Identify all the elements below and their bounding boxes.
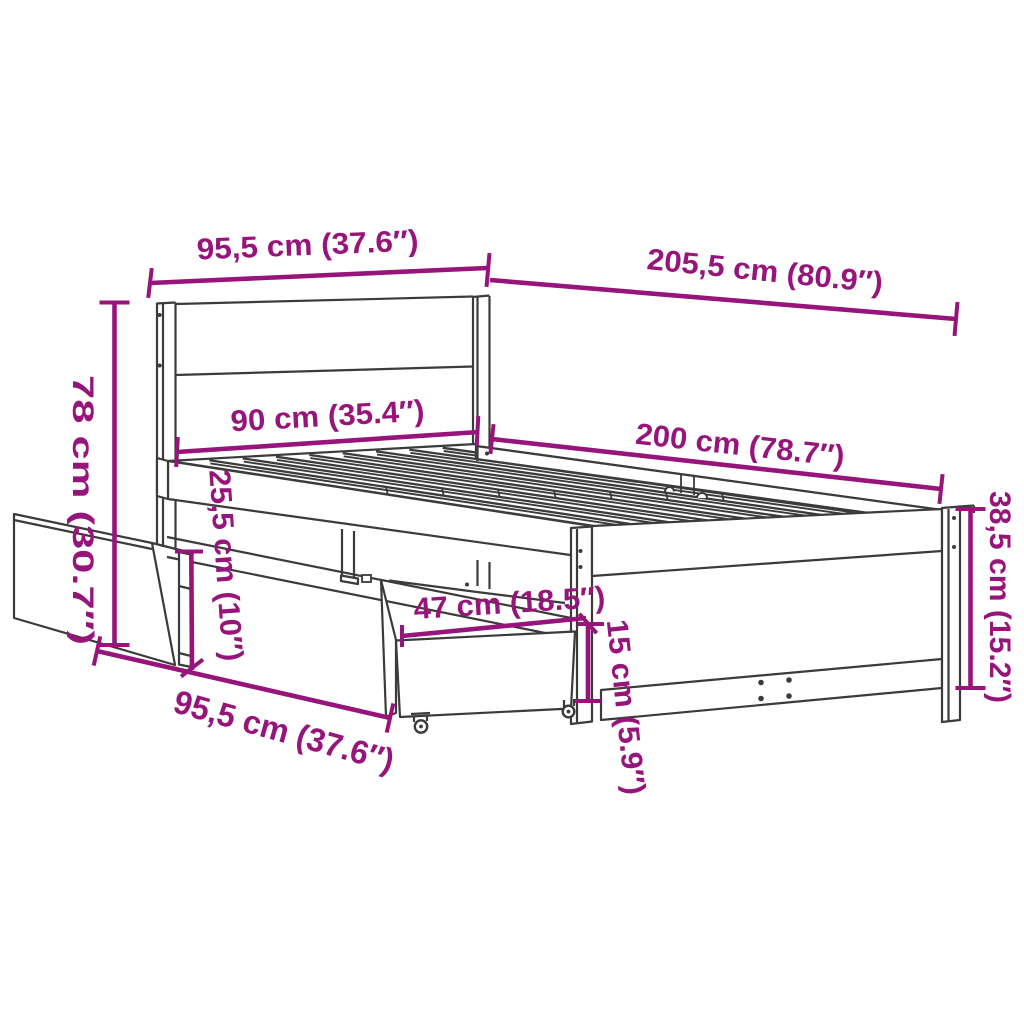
svg-text:78 cm (30.7″): 78 cm (30.7″) [66, 375, 99, 645]
svg-text:38,5 cm (15.2″): 38,5 cm (15.2″) [983, 491, 1016, 703]
